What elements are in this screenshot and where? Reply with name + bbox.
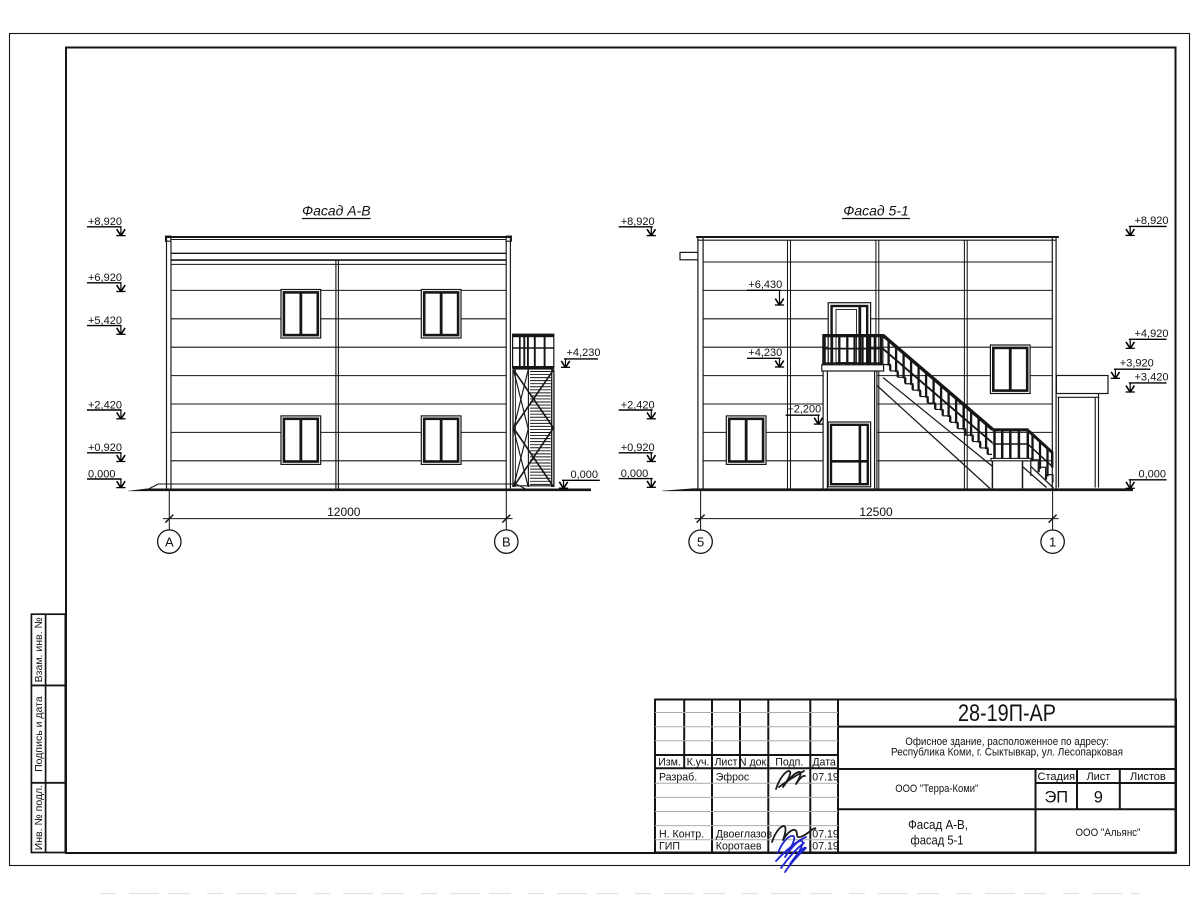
svg-text:ГИП: ГИП (659, 840, 680, 852)
svg-text:ЭП: ЭП (1044, 789, 1068, 807)
svg-text:07.19: 07.19 (812, 840, 839, 852)
svg-text:Фасад А-В,: Фасад А-В, (908, 818, 968, 832)
svg-text:Изм.: Изм. (658, 757, 681, 769)
svg-text:Н. Контр.: Н. Контр. (659, 828, 704, 840)
svg-text:5: 5 (697, 534, 704, 549)
svg-text:ООО "Альянс": ООО "Альянс" (1076, 827, 1141, 839)
svg-text:Инв. № подл.: Инв. № подл. (33, 785, 45, 850)
svg-text:+8,920: +8,920 (1135, 215, 1169, 227)
svg-text:К.уч.: К.уч. (687, 757, 710, 769)
svg-text:Подп.: Подп. (775, 757, 803, 769)
svg-text:+4,920: +4,920 (1135, 328, 1169, 340)
svg-text:+4,230: +4,230 (748, 347, 782, 359)
svg-text:12000: 12000 (327, 505, 361, 519)
svg-text:В: В (502, 534, 511, 549)
svg-text:+4,230: +4,230 (567, 347, 601, 359)
svg-text:1: 1 (1049, 534, 1056, 549)
svg-text:07.19: 07.19 (812, 771, 839, 783)
svg-text:Эфрос: Эфрос (716, 771, 750, 783)
svg-text:фасад 5-1: фасад 5-1 (911, 833, 964, 847)
svg-text:+2,200: +2,200 (787, 404, 821, 416)
svg-text:Лист: Лист (714, 757, 737, 769)
svg-text:N док.: N док. (739, 757, 769, 769)
svg-text:07.19: 07.19 (812, 828, 839, 840)
svg-text:Фасад А-В: Фасад А-В (302, 203, 371, 219)
svg-text:0,000: 0,000 (571, 469, 599, 481)
svg-text:Подпись и дата: Подпись и дата (33, 696, 45, 772)
svg-text:Взам. инв. №: Взам. инв. № (33, 617, 45, 682)
svg-text:+3,920: +3,920 (1120, 358, 1154, 370)
svg-text:Разраб.: Разраб. (659, 771, 697, 783)
svg-text:Республика Коми, г. Сыктывкар,: Республика Коми, г. Сыктывкар, ул. Лесоп… (891, 747, 1123, 759)
svg-text:Коротаев: Коротаев (716, 840, 762, 852)
svg-text:Листов: Листов (1130, 771, 1166, 783)
svg-text:ООО "Терра-Коми": ООО "Терра-Коми" (895, 783, 978, 795)
svg-text:+3,420: +3,420 (1135, 371, 1169, 383)
svg-text:Фасад 5-1: Фасад 5-1 (843, 203, 909, 219)
svg-text:12500: 12500 (859, 505, 893, 519)
svg-text:Двоеглазов: Двоеглазов (716, 828, 773, 840)
svg-text:Дата: Дата (812, 757, 836, 769)
svg-text:28-19П-АР: 28-19П-АР (958, 700, 1056, 727)
svg-text:А: А (165, 534, 174, 549)
svg-text:+6,430: +6,430 (748, 279, 782, 291)
svg-text:9: 9 (1094, 789, 1103, 807)
svg-text:Лист: Лист (1086, 771, 1110, 783)
svg-text:Стадия: Стадия (1038, 771, 1076, 783)
svg-text:0,000: 0,000 (1139, 468, 1167, 480)
